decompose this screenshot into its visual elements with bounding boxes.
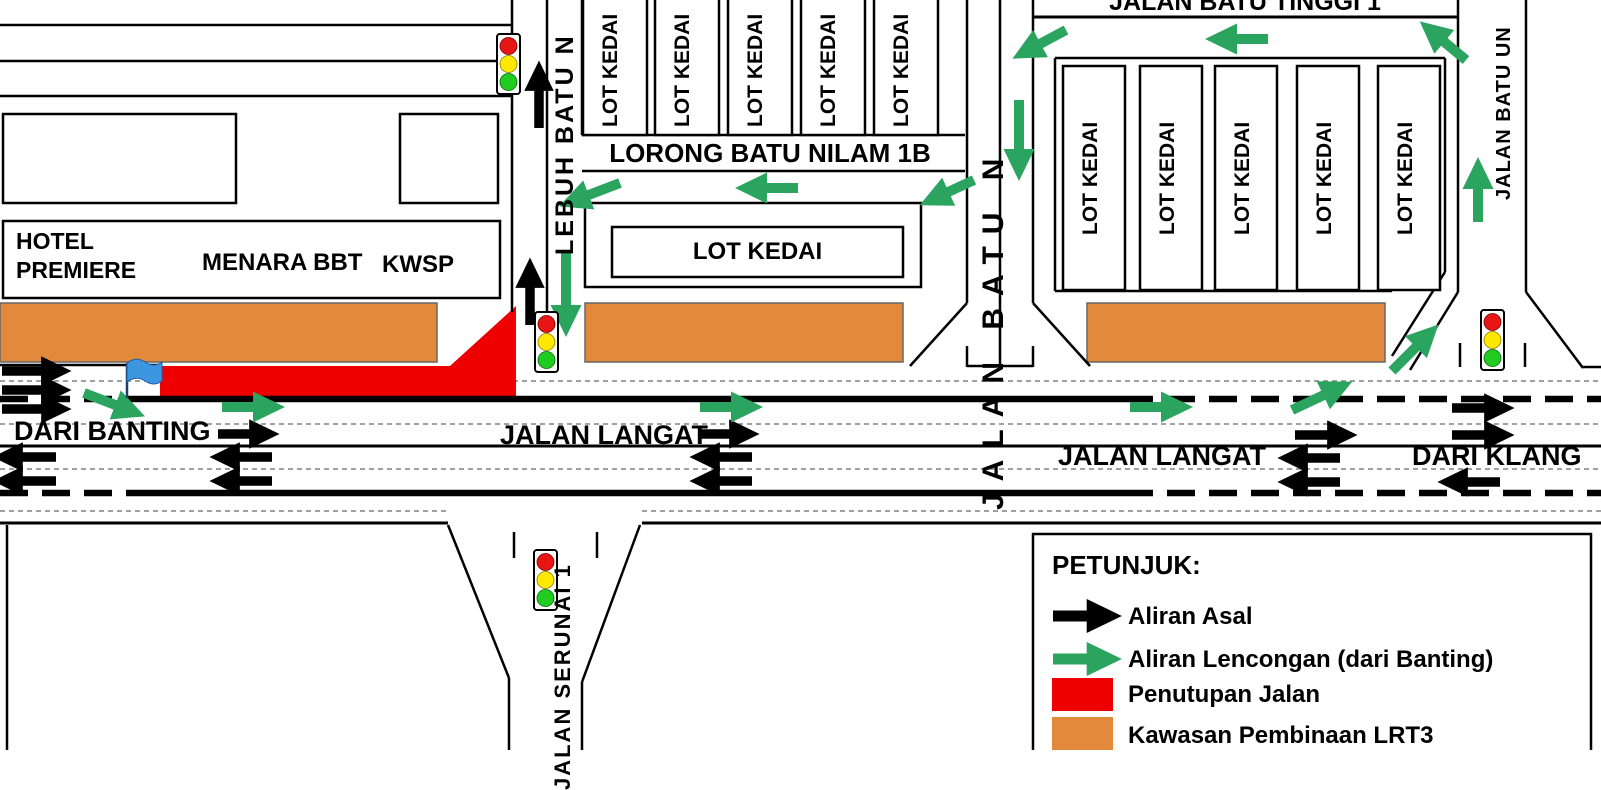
- legend-item-kawasan-pembinaan: Kawasan Pembinaan LRT3: [1128, 722, 1433, 750]
- shop-lot-label: LOT KEDAI: [671, 0, 701, 127]
- road-label-lebuh-batu-n: LEBUH BATU N: [551, 0, 579, 255]
- shop-lot-label: LOT KEDAI: [599, 0, 629, 127]
- building-label-kwsp: KWSP: [382, 251, 454, 279]
- legend-item-aliran-asal: Aliran Asal: [1128, 603, 1253, 631]
- flag-icon: [127, 359, 162, 398]
- road-network-drawing: [0, 0, 1601, 750]
- building-label-hotel-premiere: HOTEL PREMIERE: [16, 227, 156, 285]
- shop-lot-label: LOT KEDAI: [1079, 66, 1109, 290]
- legend-red-swatch: [1052, 678, 1113, 711]
- road-label-jalan-langat-east: JALAN LANGAT: [1058, 441, 1266, 472]
- road-label-jalan-langat-west: JALAN LANGAT: [500, 420, 708, 451]
- lrt3-construction-areas: [0, 303, 1385, 362]
- road-label-jalan-batu-un: JALAN BATU UN: [1493, 0, 1521, 200]
- building-label-lot-kedai-center: LOT KEDAI: [612, 227, 903, 277]
- legend-orange-swatch: [1052, 717, 1113, 750]
- traffic-diversion-map: { "map": { "title_context": "LRT3 road d…: [0, 0, 1601, 750]
- shop-lot-label: LOT KEDAI: [1313, 66, 1343, 290]
- road-label-dari-banting: DARI BANTING: [14, 416, 211, 447]
- shop-lot-label: LOT KEDAI: [817, 0, 847, 127]
- shop-lot-label: LOT KEDAI: [1394, 66, 1424, 290]
- road-label-jalan-batu-tinggi-1: JALAN BATU TINGGI 1: [1080, 0, 1410, 17]
- legend-item-penutupan-jalan: Penutupan Jalan: [1128, 681, 1320, 709]
- legend-item-aliran-lencongan: Aliran Lencongan (dari Banting): [1128, 646, 1493, 674]
- traffic-light-icon-lebuh-top: [497, 34, 520, 94]
- shop-lot-label: LOT KEDAI: [744, 0, 774, 127]
- shop-lot-label: LOT KEDAI: [890, 0, 920, 127]
- road-label-jalan-batu-n: JALAN BATU N: [977, 10, 1005, 510]
- road-label-lorong-batu-nilam-1b: LORONG BATU NILAM 1B: [600, 138, 940, 169]
- shop-lot-label: LOT KEDAI: [1156, 66, 1186, 290]
- shop-lot-label: LOT KEDAI: [1231, 66, 1261, 290]
- legend-title: PETUNJUK:: [1052, 550, 1201, 581]
- road-label-jalan-serunai-1: JALAN SERUNAI 1: [550, 545, 578, 790]
- traffic-light-icon-lebuh-langat: [535, 312, 558, 372]
- building-label-menara-bbt: MENARA BBT: [202, 249, 362, 277]
- traffic-light-icon-unjur-langat: [1481, 310, 1504, 370]
- road-label-dari-klang: DARI KLANG: [1412, 441, 1582, 472]
